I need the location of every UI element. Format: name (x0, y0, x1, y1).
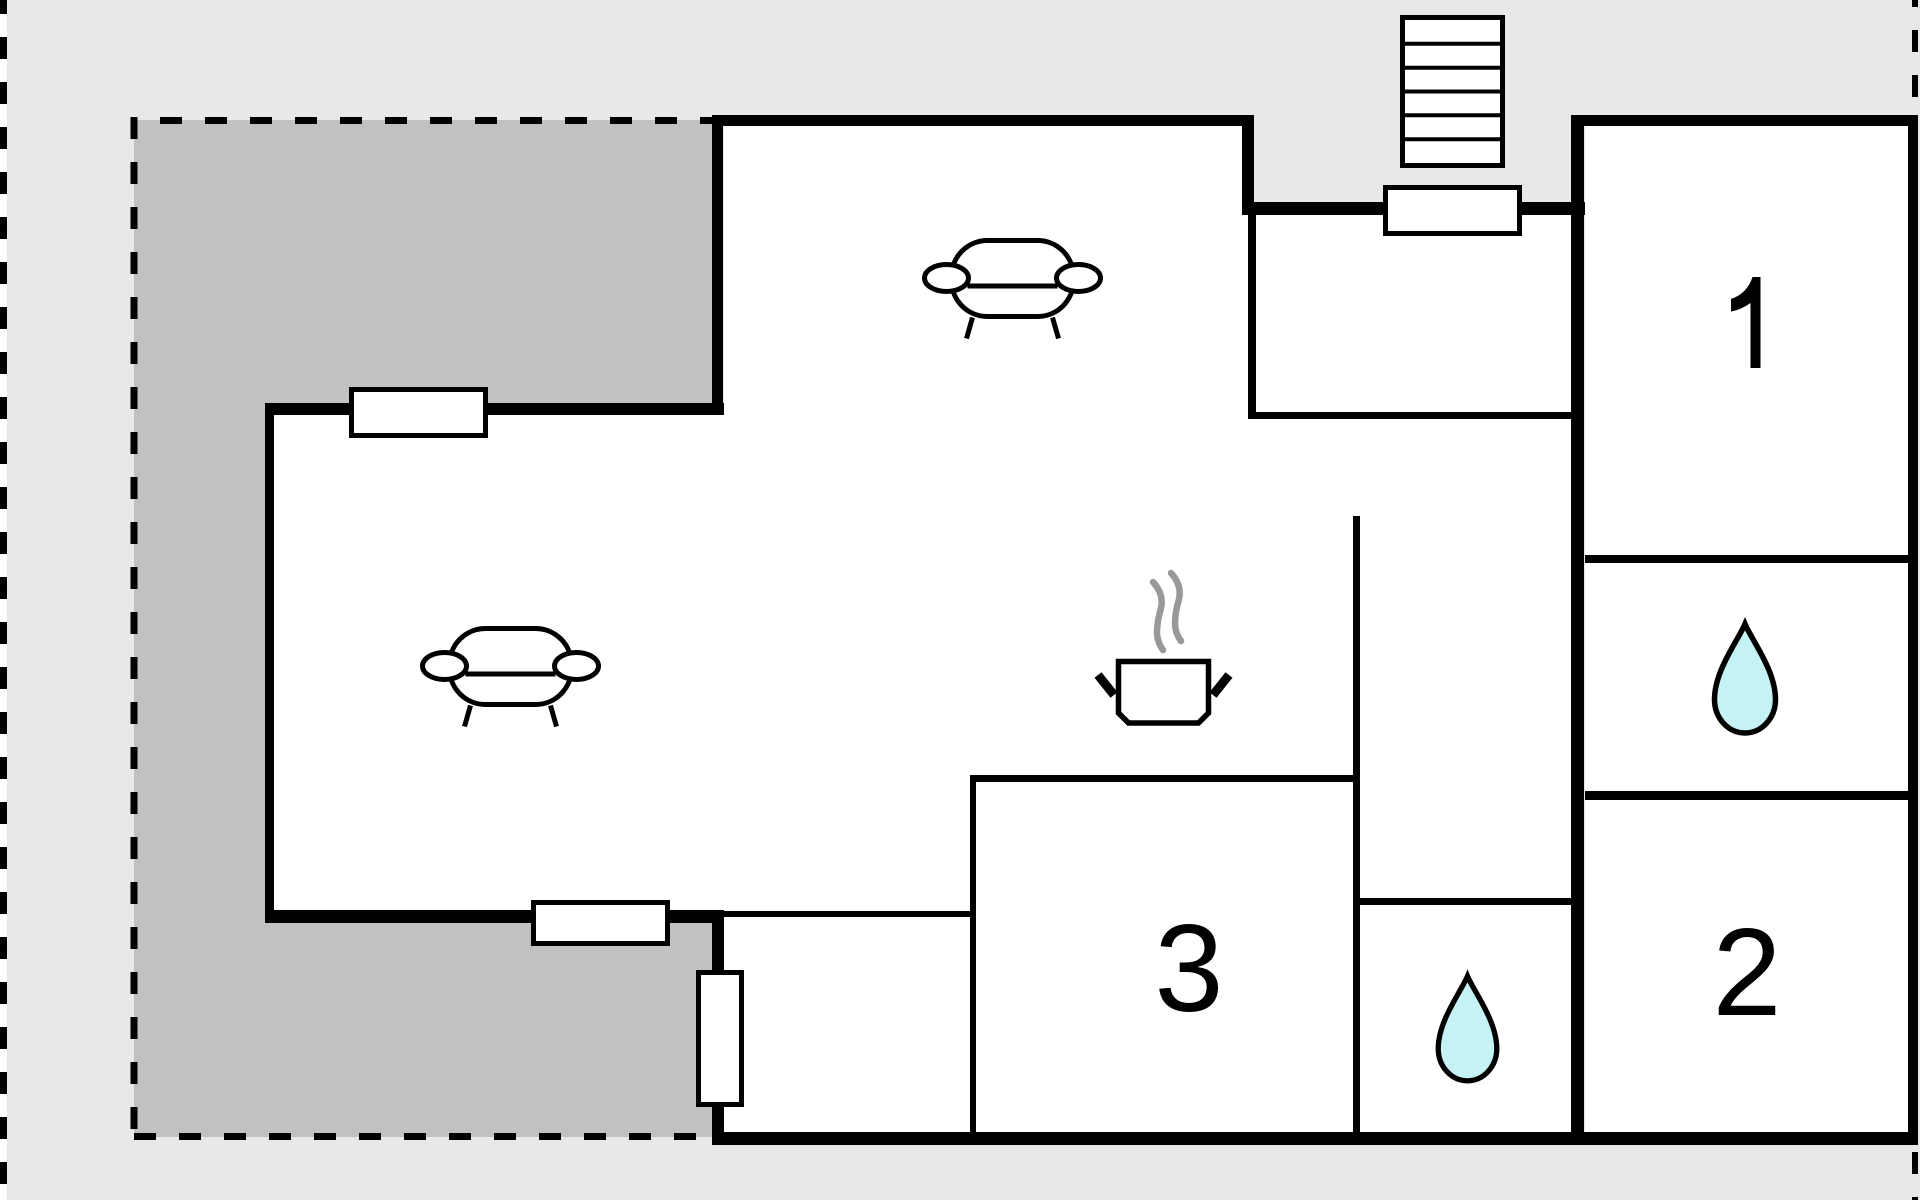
svg-text:2: 2 (1713, 904, 1782, 1042)
svg-text:3: 3 (1155, 900, 1224, 1038)
